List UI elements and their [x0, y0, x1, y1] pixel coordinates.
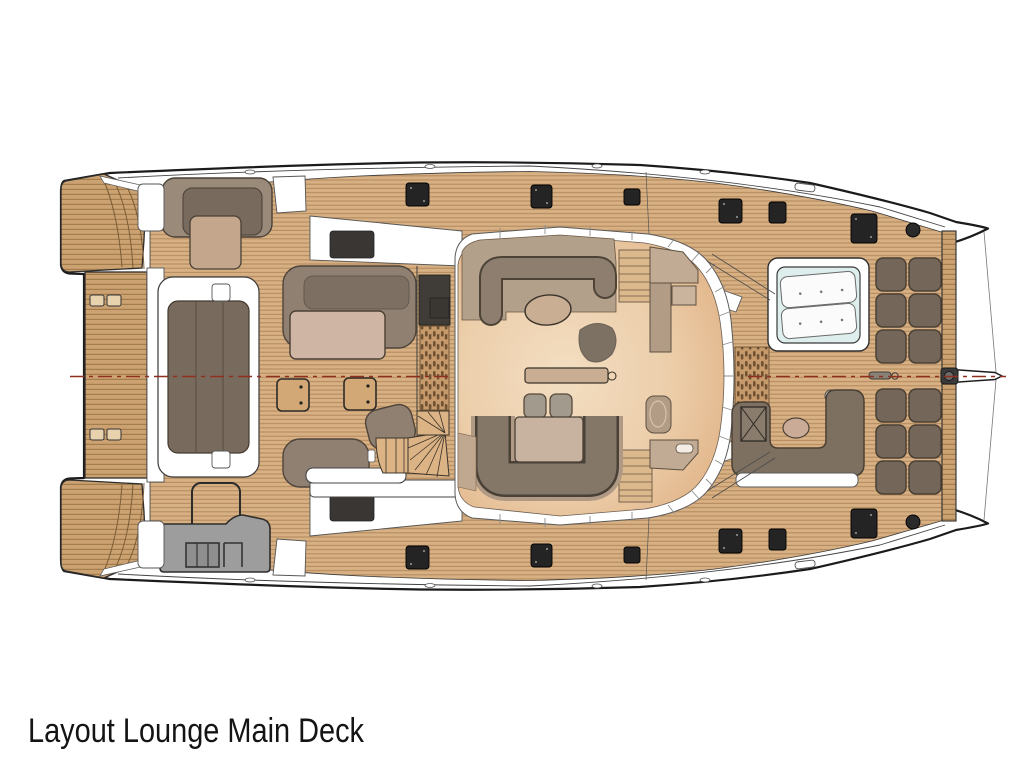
svg-text:Layout Lounge Main Deck: Layout Lounge Main Deck [28, 712, 365, 750]
